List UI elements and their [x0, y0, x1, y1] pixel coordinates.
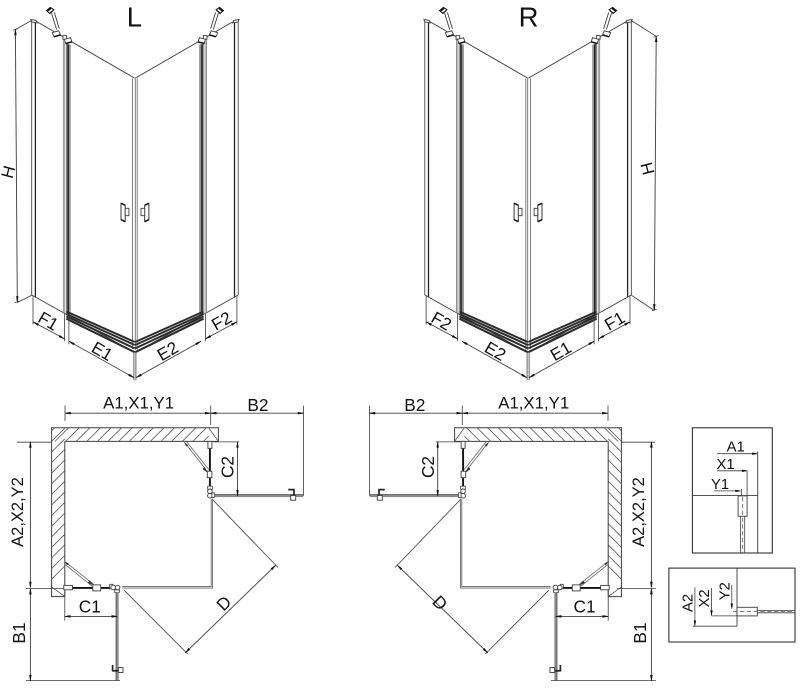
svg-text:B2: B2: [404, 395, 425, 415]
svg-text:X2: X2: [697, 589, 713, 607]
svg-text:A2: A2: [681, 594, 697, 612]
svg-text:C1: C1: [574, 596, 596, 616]
svg-text:L: L: [127, 1, 142, 32]
svg-text:C2: C2: [418, 456, 438, 478]
svg-text:B1: B1: [9, 622, 29, 643]
svg-text:C2: C2: [217, 456, 237, 478]
svg-text:A2,X2,Y2: A2,X2,Y2: [630, 477, 648, 547]
svg-text:R: R: [519, 1, 539, 32]
svg-text:Y2: Y2: [717, 582, 733, 600]
svg-text:A1,X1,Y1: A1,X1,Y1: [498, 393, 569, 412]
svg-text:A1,X1,Y1: A1,X1,Y1: [103, 393, 174, 412]
svg-text:A2,X2,Y2: A2,X2,Y2: [9, 477, 27, 547]
svg-text:B2: B2: [247, 395, 268, 415]
svg-text:A1: A1: [727, 440, 745, 456]
svg-text:C1: C1: [79, 596, 101, 616]
svg-text:B1: B1: [630, 622, 650, 643]
